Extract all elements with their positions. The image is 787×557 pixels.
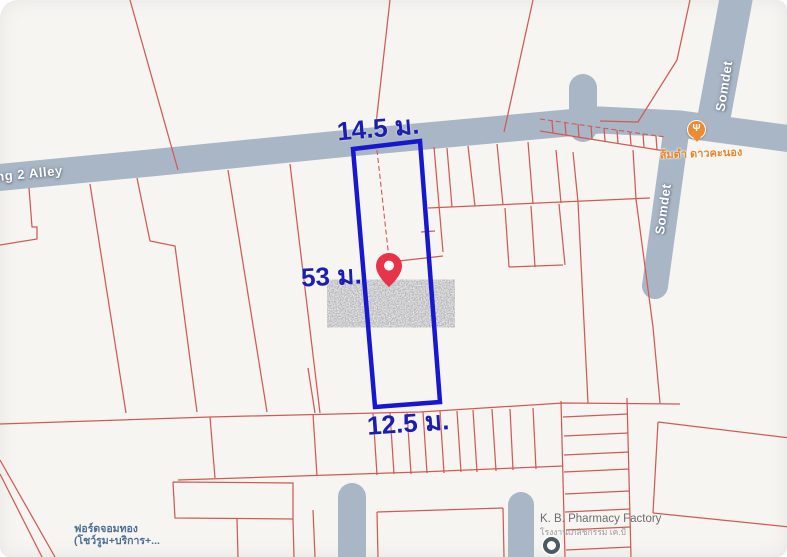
parcel-line [293, 519, 294, 557]
parcel-line [313, 510, 315, 557]
parcel-line [492, 409, 496, 471]
pharmacy-poi-name: K. B. Pharmacy Factory [540, 513, 661, 525]
parcel-line [573, 152, 578, 202]
parcel-line [564, 469, 629, 472]
pharmacy-poi[interactable]: K. B. Pharmacy Factory โรงงานเภสัชกรรม เ… [540, 513, 661, 539]
parcel-line [566, 547, 631, 550]
parcel-line [130, 0, 178, 170]
parcel-line [377, 512, 378, 557]
ford-dealer-name: ฟอร์ดจอมทอง [74, 523, 160, 535]
parcel-line [565, 491, 629, 494]
parcel-line [0, 403, 680, 424]
parcel-line [457, 411, 461, 472]
dimension-label-bottom: 12.5 ม. [366, 400, 451, 447]
parcel-line [376, 0, 390, 124]
parcel-line [0, 188, 37, 245]
parcel-line [509, 265, 563, 267]
parcel-line [90, 184, 126, 413]
parcel-line [228, 170, 267, 412]
parcel-line [531, 206, 535, 267]
pin-hole [384, 261, 394, 271]
parcel-line [563, 414, 628, 417]
parcel-line [658, 422, 787, 438]
dimension-label-left: 53 ม. [300, 254, 363, 298]
ford-dealer-poi[interactable]: ฟอร์ดจอมทอง (โชว์รูม+บริการ+... [74, 523, 160, 547]
parcel-line [653, 422, 658, 513]
parcel-line [173, 482, 293, 519]
parcel-line [503, 508, 504, 557]
map-canvas [0, 0, 787, 557]
parcel-line [178, 466, 563, 480]
location-pin[interactable] [376, 253, 402, 287]
parcel-line [468, 146, 475, 206]
parcel-line [633, 150, 636, 199]
ford-dealer-subtitle: (โชว์รูม+บริการ+... [74, 535, 160, 547]
parcel-line [600, 0, 690, 122]
parcel-line-dashed [377, 150, 390, 268]
parcel-line [556, 150, 561, 203]
parcel-line [504, 0, 533, 132]
parcel-line [0, 474, 42, 557]
parcel-line [510, 409, 513, 470]
map-viewport[interactable]: ng 2 Alley Somdet Somdet 14.5 ม. 53 ม. 1… [0, 0, 787, 557]
parcel-line [210, 417, 215, 478]
parcel-line [653, 513, 787, 527]
parcel-line [564, 452, 629, 455]
dimension-label-top: 14.5 ม. [335, 104, 420, 152]
parcel-line [428, 198, 650, 208]
factory-poi-icon[interactable] [543, 537, 560, 554]
parcel-line [497, 144, 503, 205]
pharmacy-poi-subtitle: โรงงานเภสัชกรรม เค.บี [540, 525, 661, 539]
parcel-line [237, 519, 238, 557]
parcel-line [559, 204, 565, 265]
parcel-line [313, 414, 317, 476]
parcel-line [377, 508, 503, 512]
parcel-line [473, 410, 477, 472]
parcel-line [447, 148, 452, 207]
parcel-line [308, 368, 315, 413]
parcel-line [578, 202, 588, 403]
parcel-line [505, 208, 509, 267]
parcel-line [434, 147, 443, 252]
parcel-line [565, 509, 630, 512]
restaurant-poi-icon[interactable]: Ψ [687, 120, 706, 139]
parcel-line [528, 142, 533, 204]
parcel-line [137, 178, 197, 412]
parcel-line [0, 460, 55, 557]
parcel-line [533, 408, 536, 469]
parcel-line [564, 433, 628, 436]
